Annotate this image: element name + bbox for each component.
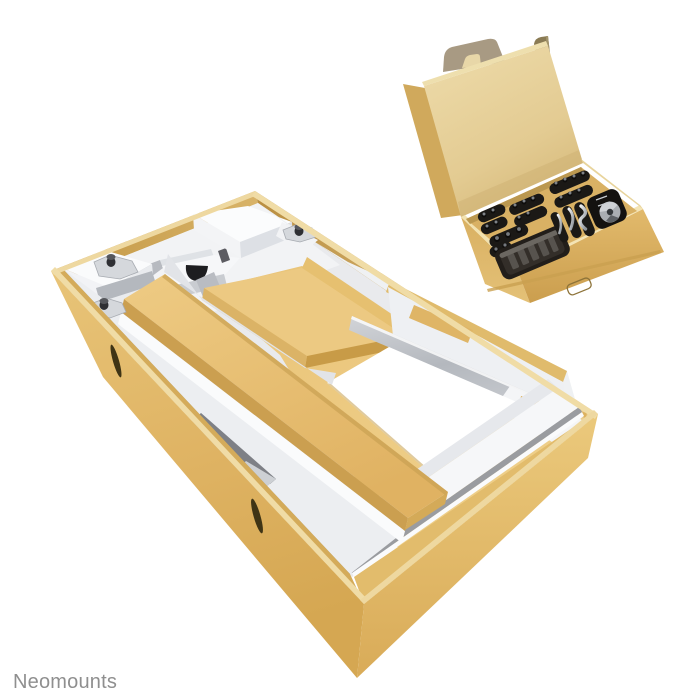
svg-text:Neomounts: Neomounts: [13, 671, 117, 693]
